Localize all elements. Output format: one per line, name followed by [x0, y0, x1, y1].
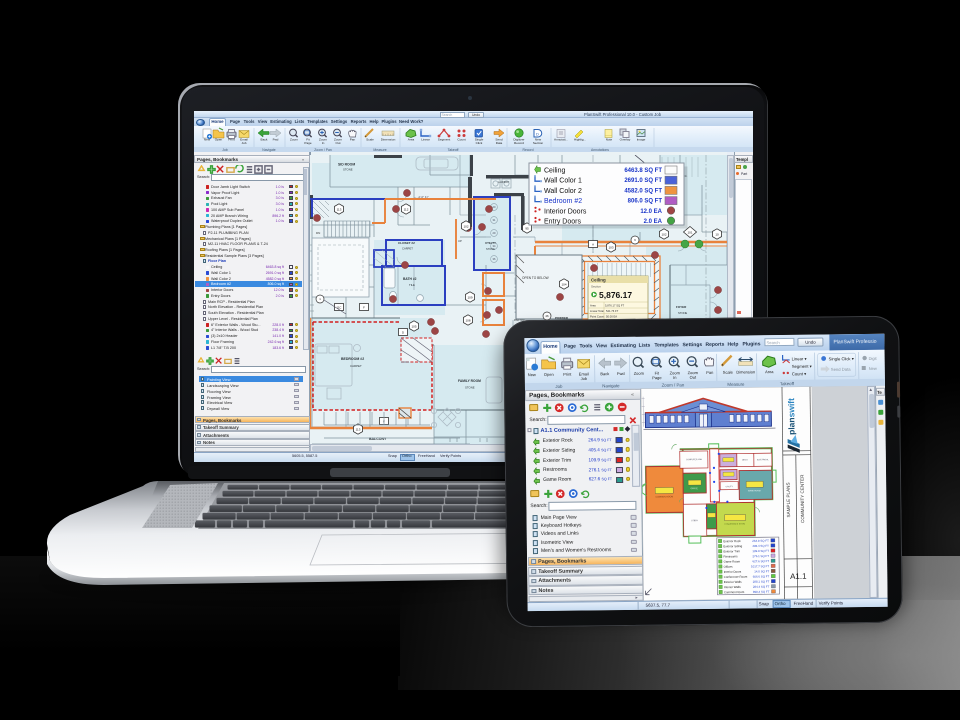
- svg-text:Linear ▾: Linear ▾: [792, 356, 807, 361]
- svg-text:D: D: [536, 132, 539, 137]
- svg-text:SAMPLE PLANS: SAMPLE PLANS: [786, 482, 791, 517]
- svg-text:6463.8 SQ FT: 6463.8 SQ FT: [624, 168, 662, 174]
- svg-text:FOYER: FOYER: [676, 305, 687, 309]
- svg-text:Job: Job: [242, 141, 247, 145]
- svg-text:Ceiling: Ceiling: [544, 168, 566, 175]
- svg-text:Annotati...: Annotati...: [554, 138, 568, 142]
- svg-text:Area: Area: [408, 138, 415, 142]
- svg-text:Highlig...: Highlig...: [574, 138, 586, 142]
- svg-text:Exterior Walls: Exterior Walls: [724, 580, 742, 584]
- svg-text:CLOSET #2: CLOSET #2: [398, 241, 415, 245]
- svg-text:Print: Print: [228, 138, 235, 142]
- svg-text:Note: Note: [606, 138, 613, 142]
- svg-text:Entry Doors: Entry Doors: [544, 219, 581, 226]
- svg-text:Exterior Siding: Exterior Siding: [723, 544, 742, 548]
- svg-text:Data: Data: [496, 141, 503, 145]
- svg-text:102: 102: [661, 232, 666, 236]
- svg-text:Back: Back: [600, 371, 609, 376]
- svg-text:Back: Back: [261, 138, 268, 142]
- svg-text:OFFICE: OFFICE: [691, 488, 699, 490]
- svg-text:TILE: TILE: [409, 283, 415, 287]
- svg-text:541.76 FT: 541.76 FT: [606, 309, 619, 313]
- svg-text:898.4 SQ FT: 898.4 SQ FT: [753, 590, 770, 594]
- svg-text:627.6 SQ FT: 627.6 SQ FT: [753, 559, 770, 563]
- svg-text:BEDROOM #2: BEDROOM #2: [341, 357, 364, 361]
- svg-text:In: In: [322, 141, 325, 145]
- svg-text:CARPET: CARPET: [402, 247, 413, 251]
- svg-text:UP: UP: [458, 239, 462, 243]
- svg-text:2.0 EA: 2.0 EA: [644, 219, 663, 225]
- svg-text:Section: Section: [591, 285, 601, 289]
- svg-text:Conference Room: Conference Room: [724, 575, 748, 579]
- svg-text:Out: Out: [690, 375, 697, 380]
- svg-text:1017.7 SQ FT: 1017.7 SQ FT: [751, 564, 769, 568]
- svg-text:CARPET: CARPET: [350, 364, 362, 368]
- svg-text:New: New: [869, 366, 877, 371]
- svg-text:Zoom / Pan: Zoom / Pan: [662, 382, 685, 387]
- svg-text:Common Room: Common Room: [724, 590, 745, 594]
- svg-text:Exterior Trim: Exterior Trim: [723, 549, 740, 553]
- svg-text:26: 26: [545, 314, 549, 318]
- svg-text:14.0 SQ FT: 14.0 SQ FT: [754, 569, 769, 573]
- svg-text:104: 104: [561, 282, 566, 286]
- svg-text:STONE: STONE: [343, 168, 353, 172]
- svg-text:108: 108: [465, 318, 470, 322]
- svg-text:Single Click ▾: Single Click ▾: [829, 356, 854, 361]
- svg-text:COMMON ROOM: COMMON ROOM: [655, 496, 673, 498]
- svg-text:95: 95: [525, 226, 529, 230]
- svg-text:Record: Record: [514, 141, 524, 145]
- svg-text:4582.0 SQ FT: 4582.0 SQ FT: [624, 188, 662, 194]
- svg-text:BALCONY: BALCONY: [369, 437, 387, 441]
- svg-text:Scale: Scale: [723, 370, 734, 375]
- svg-text:Open: Open: [544, 372, 554, 377]
- svg-text:LAUNDRY: LAUNDRY: [498, 181, 510, 184]
- svg-text:102: 102: [463, 224, 468, 228]
- svg-text:Wall Color 2: Wall Color 2: [544, 188, 582, 195]
- svg-text:Click: Click: [476, 141, 483, 145]
- svg-text:DN: DN: [316, 231, 320, 235]
- svg-text:STONE: STONE: [678, 311, 687, 315]
- svg-text:FAMILY ROOM: FAMILY ROOM: [458, 379, 481, 383]
- svg-text:A1.1: A1.1: [790, 572, 807, 581]
- svg-text:Bedroom #2: Bedroom #2: [544, 198, 582, 205]
- svg-text:STONE: STONE: [465, 386, 475, 390]
- svg-text:Segment ▾: Segment ▾: [792, 364, 812, 369]
- svg-text:Page: Page: [304, 141, 312, 145]
- svg-text:Segment: Segment: [438, 138, 451, 142]
- svg-text:Ceiling: Ceiling: [591, 277, 606, 282]
- svg-text:Overlay: Overlay: [620, 138, 631, 142]
- svg-text:Job: Job: [581, 376, 588, 381]
- svg-text:COMMUNITY CENTER: COMMUNITY CENTER: [800, 474, 806, 523]
- svg-text:50.00 EA: 50.00 EA: [606, 315, 617, 319]
- svg-text:SID ROOM: SID ROOM: [338, 163, 355, 167]
- svg-text:288.1 SQ FT: 288.1 SQ FT: [753, 579, 770, 583]
- svg-text:276.1 SQ FT: 276.1 SQ FT: [752, 554, 769, 558]
- svg-text:New: New: [204, 138, 211, 142]
- svg-text:5,876.17 SQ FT: 5,876.17 SQ FT: [605, 304, 624, 308]
- svg-text:5,876.17: 5,876.17: [599, 290, 632, 300]
- svg-text:Zoom: Zoom: [290, 138, 298, 142]
- svg-text:STONE: STONE: [486, 247, 495, 251]
- svg-text:A: A: [592, 242, 594, 246]
- svg-text:606.6 SQ FT: 606.6 SQ FT: [753, 574, 770, 578]
- svg-text:10: 10: [715, 232, 719, 236]
- svg-text:284.4 SQ FT: 284.4 SQ FT: [753, 585, 770, 589]
- svg-text:Linear Total: Linear Total: [590, 309, 604, 313]
- svg-text:Pan: Pan: [350, 138, 356, 142]
- svg-text:Scale: Scale: [366, 138, 374, 142]
- svg-text:Open: Open: [215, 138, 223, 142]
- svg-text:OPEN TO BELOW: OPEN TO BELOW: [522, 276, 549, 280]
- svg-text:Print: Print: [563, 372, 572, 377]
- svg-text:CONFERENCE ROOM: CONFERENCE ROOM: [724, 523, 745, 525]
- svg-text:Interior Doors: Interior Doors: [544, 208, 587, 215]
- svg-text:Takeoff: Takeoff: [780, 381, 795, 386]
- svg-text:D: D: [402, 330, 404, 334]
- svg-text:BATH #2: BATH #2: [403, 277, 417, 281]
- svg-text:Zoom: Zoom: [634, 371, 645, 376]
- svg-text:105: 105: [411, 324, 416, 328]
- svg-text:UTILITY: UTILITY: [726, 486, 734, 488]
- svg-text:Dimension: Dimension: [736, 369, 755, 374]
- svg-text:2691.0 SQ FT: 2691.0 SQ FT: [624, 178, 662, 184]
- svg-text:Dimension: Dimension: [381, 138, 396, 142]
- svg-text:Image: Image: [637, 138, 646, 142]
- svg-text:Wall Color 1: Wall Color 1: [544, 178, 582, 185]
- svg-text:Measure: Measure: [727, 382, 745, 387]
- svg-text:Area: Area: [765, 369, 774, 374]
- svg-text:405.4 SQ FT: 405.4 SQ FT: [752, 544, 769, 548]
- svg-text:LOBBY: LOBBY: [691, 520, 698, 522]
- svg-text:Section: Section: [533, 141, 544, 145]
- svg-text:113: 113: [337, 207, 342, 211]
- svg-text:Out: Out: [336, 141, 341, 145]
- svg-text:GAME ROOM: GAME ROOM: [748, 489, 761, 492]
- svg-text:Pan: Pan: [706, 370, 713, 375]
- svg-text:Interior Doors: Interior Doors: [724, 570, 742, 574]
- svg-text:Restrooms: Restrooms: [724, 554, 739, 558]
- svg-text:↔ -2'-0" F.7: ↔ -2'-0" F.7: [414, 195, 429, 199]
- svg-text:New: New: [528, 372, 536, 377]
- svg-text:In: In: [673, 375, 676, 380]
- svg-text:UTILITY: UTILITY: [485, 241, 496, 245]
- svg-text:Game Room: Game Room: [724, 559, 741, 563]
- svg-text:112: 112: [404, 207, 409, 211]
- svg-text:Page: Page: [652, 375, 662, 380]
- svg-text:Linear: Linear: [421, 138, 430, 142]
- svg-text:Offices: Offices: [724, 565, 734, 569]
- svg-text:Count: Count: [457, 138, 465, 142]
- svg-text:109: 109: [467, 295, 472, 299]
- svg-text:Interior Walls: Interior Walls: [724, 585, 741, 589]
- svg-text:806.0 SQ FT: 806.0 SQ FT: [628, 199, 663, 205]
- svg-text:113: 113: [356, 427, 361, 431]
- svg-text:F: F: [363, 305, 365, 309]
- svg-text:Fwd: Fwd: [273, 138, 279, 142]
- svg-text:Digit: Digit: [869, 356, 878, 361]
- svg-text:planswift: planswift: [786, 398, 796, 435]
- svg-text:MECH: MECH: [742, 459, 748, 461]
- svg-text:264.9 SQ FT: 264.9 SQ FT: [752, 539, 769, 543]
- svg-text:12.0 EA: 12.0 EA: [640, 209, 662, 215]
- svg-text:COMPUTER LAB: COMPUTER LAB: [686, 458, 702, 461]
- svg-text:Job: Job: [555, 384, 563, 389]
- svg-text:Navigate: Navigate: [602, 383, 620, 388]
- svg-text:101: 101: [687, 230, 692, 234]
- svg-text:Exterior Rock: Exterior Rock: [723, 539, 741, 543]
- svg-text:Count ▾: Count ▾: [792, 371, 807, 376]
- svg-text:Send Data: Send Data: [831, 367, 852, 372]
- svg-text:109.9 SQ FT: 109.9 SQ FT: [752, 549, 769, 553]
- svg-text:Area: Area: [590, 304, 596, 308]
- svg-text:ELECTRICAL: ELECTRICAL: [757, 458, 769, 461]
- svg-text:103: 103: [608, 245, 613, 249]
- svg-text:Point Count:: Point Count:: [590, 315, 605, 319]
- svg-text:Fwd: Fwd: [617, 371, 625, 376]
